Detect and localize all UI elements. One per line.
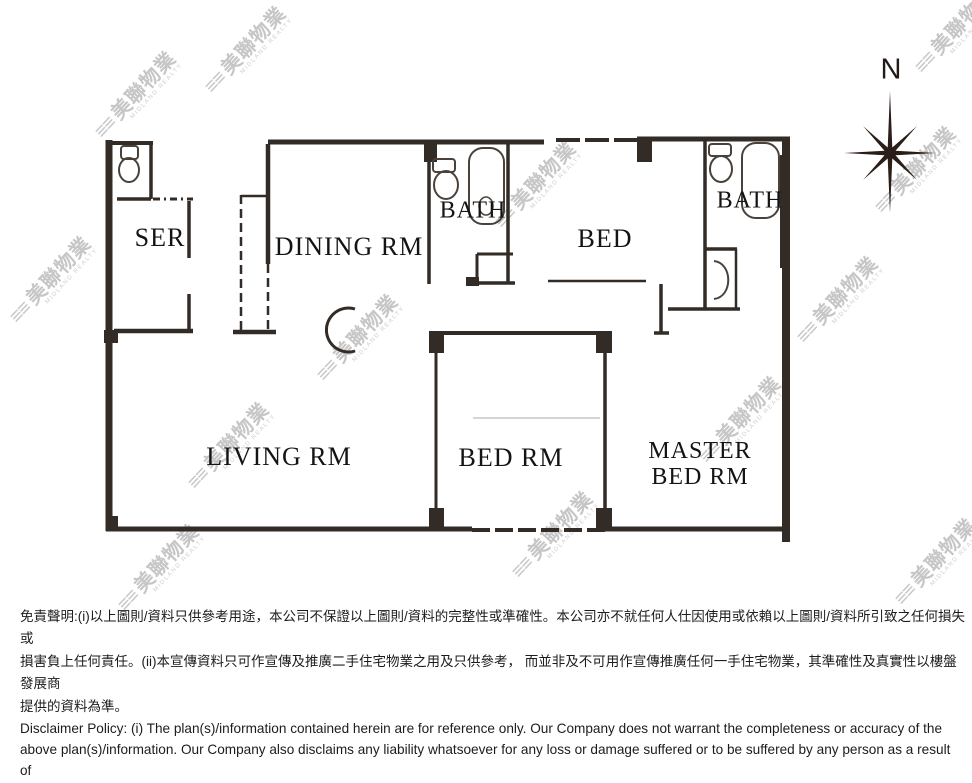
door-swing-arc [326, 308, 355, 352]
room-label-bed-rm: BED RM [459, 443, 564, 473]
room-label-dining-rm: DINING RM [275, 232, 423, 262]
disclaimer-zh-line: 免責聲明:(i)以上圖則/資料只供參考用途，本公司不保證以上圖則/資料的完整性或… [20, 606, 965, 651]
disclaimer-en-line: above plan(s)/information. Our Company a… [20, 739, 965, 781]
compass-star-icon [844, 91, 936, 213]
room-label-master-bed-rm: MASTER BED RM [648, 438, 751, 490]
disclaimer-en-line: Disclaimer Policy: (i) The plan(s)/infor… [20, 718, 965, 739]
room-label-bed-top: BED [578, 224, 633, 254]
floor-plan-page: ≡≡美聯物業MIDLAND REALTY ≡≡美聯物業MIDLAND REALT… [0, 0, 972, 783]
toilet-icon [709, 144, 732, 182]
room-label-ser: SER [135, 223, 186, 253]
wash-basin-icon [714, 261, 728, 299]
disclaimer-zh-line: 提供的資料為準。 [20, 696, 965, 718]
floor-plan-drawing [0, 0, 972, 600]
compass-north-label: N [881, 54, 902, 87]
master-label-line1: MASTER [648, 438, 751, 464]
room-label-bath-top: BATH [440, 198, 507, 225]
room-label-bath-right: BATH [717, 188, 784, 215]
room-label-living-rm: LIVING RM [206, 442, 352, 472]
toilet-icon [119, 146, 139, 182]
disclaimer-block: 免責聲明:(i)以上圖則/資料只供參考用途，本公司不保證以上圖則/資料的完整性或… [20, 606, 965, 783]
disclaimer-zh-line: 損害負上任何責任。(ii)本宣傳資料只可作宣傳及推廣二手住宅物業之用及只供參考，… [20, 651, 965, 696]
master-label-line2: BED RM [648, 464, 751, 490]
disclaimer-chinese: 免責聲明:(i)以上圖則/資料只供參考用途，本公司不保證以上圖則/資料的完整性或… [20, 606, 965, 718]
disclaimer-english: Disclaimer Policy: (i) The plan(s)/infor… [20, 718, 965, 783]
toilet-icon [433, 159, 458, 199]
